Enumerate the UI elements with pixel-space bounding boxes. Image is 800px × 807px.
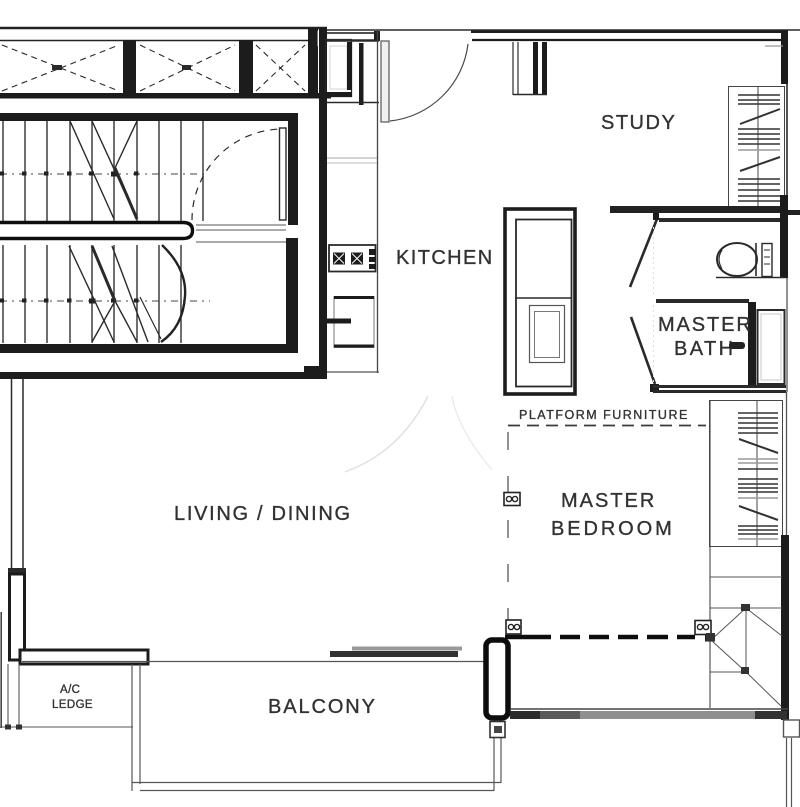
svg-text:MASTER: MASTER: [561, 490, 656, 512]
svg-text:BALCONY: BALCONY: [268, 696, 377, 718]
svg-text:BEDROOM: BEDROOM: [551, 518, 675, 540]
svg-text:LEDGE: LEDGE: [52, 699, 93, 711]
svg-text:PLATFORM FURNITURE: PLATFORM FURNITURE: [519, 408, 689, 422]
svg-text:A/C: A/C: [60, 684, 80, 696]
svg-text:BATH: BATH: [674, 338, 735, 360]
svg-text:MASTER: MASTER: [658, 314, 753, 336]
svg-text:KITCHEN: KITCHEN: [396, 247, 494, 269]
svg-text:LIVING / DINING: LIVING / DINING: [174, 503, 352, 525]
svg-text:STUDY: STUDY: [601, 112, 676, 134]
